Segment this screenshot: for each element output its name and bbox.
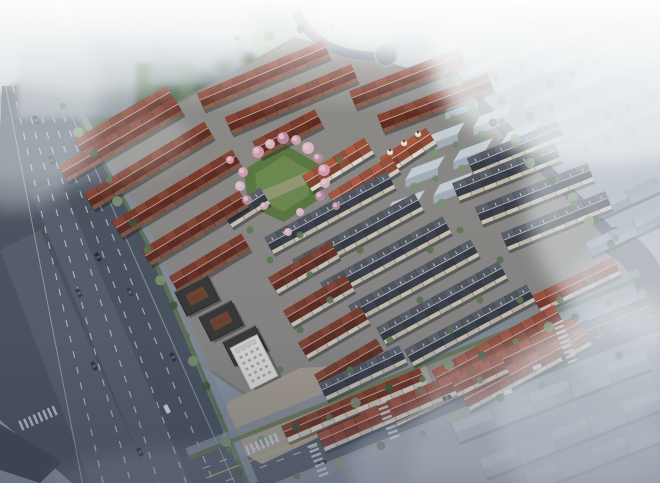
haze-layer — [0, 0, 660, 483]
aerial-render-image — [0, 0, 660, 483]
scene-canvas — [0, 0, 660, 483]
